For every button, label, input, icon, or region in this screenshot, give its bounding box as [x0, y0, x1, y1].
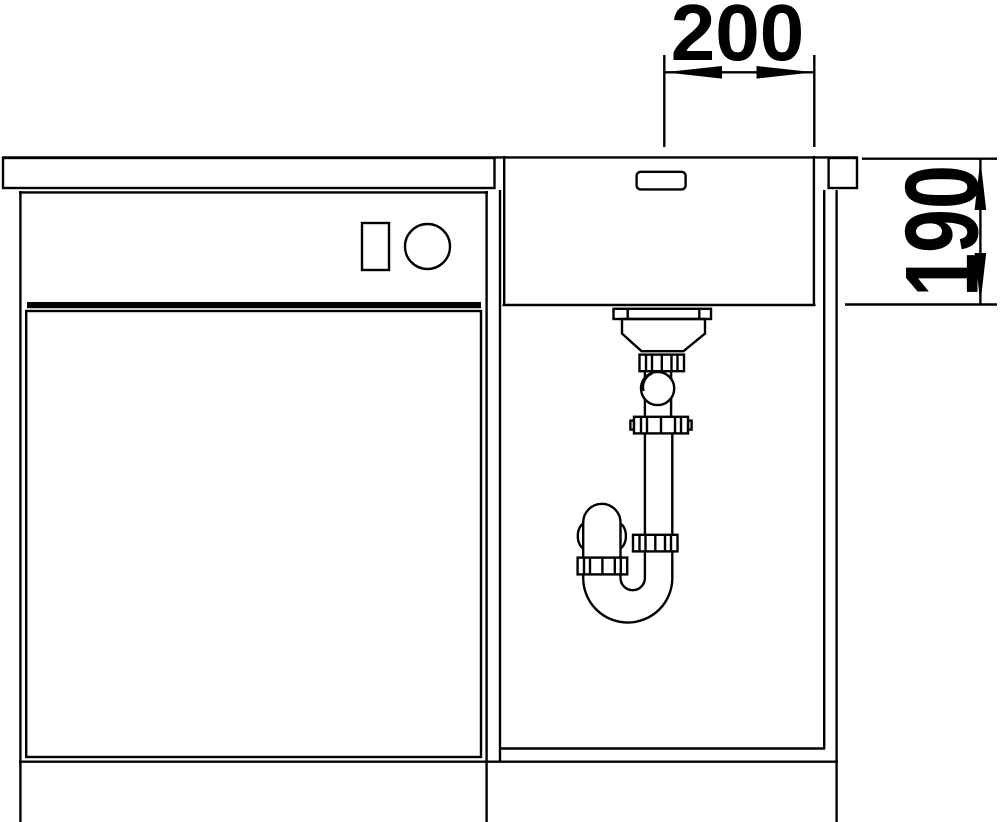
coupling-nut-upper-pipe: [630, 417, 691, 434]
control-panel-knob: [405, 224, 450, 269]
sink-installation-diagram: 200 190: [0, 0, 1000, 822]
dimension-200: 200: [664, 0, 814, 147]
trap-outer-wall: [583, 434, 672, 623]
sink-basin: [503, 156, 816, 305]
appliance-cabinet: [19, 191, 488, 822]
control-panel-display: [362, 223, 389, 270]
drain-siphon: [578, 309, 711, 623]
appliance-door-panel: [26, 311, 481, 757]
outlet-cap: [583, 504, 620, 523]
countertop: [2, 157, 858, 188]
installation-drawing-canvas: 200 190: [0, 0, 1000, 822]
sink-cabinet: [19, 190, 838, 822]
coupling-nut-top: [640, 355, 685, 372]
coupling-nut-outlet: [578, 558, 628, 575]
dimension-200-label: 200: [671, 0, 804, 77]
door-gap-strip: [27, 302, 481, 308]
drain-flange: [614, 309, 712, 319]
countertop-right-hatch: [829, 158, 857, 188]
countertop-left-hatch: [3, 158, 495, 188]
dimension-190: 190: [845, 159, 1000, 305]
coupling-nut-lower-pipe: [633, 535, 678, 552]
overflow-slot: [637, 172, 686, 190]
dimension-190-label: 190: [883, 165, 1000, 297]
drain-housing: [622, 319, 705, 351]
